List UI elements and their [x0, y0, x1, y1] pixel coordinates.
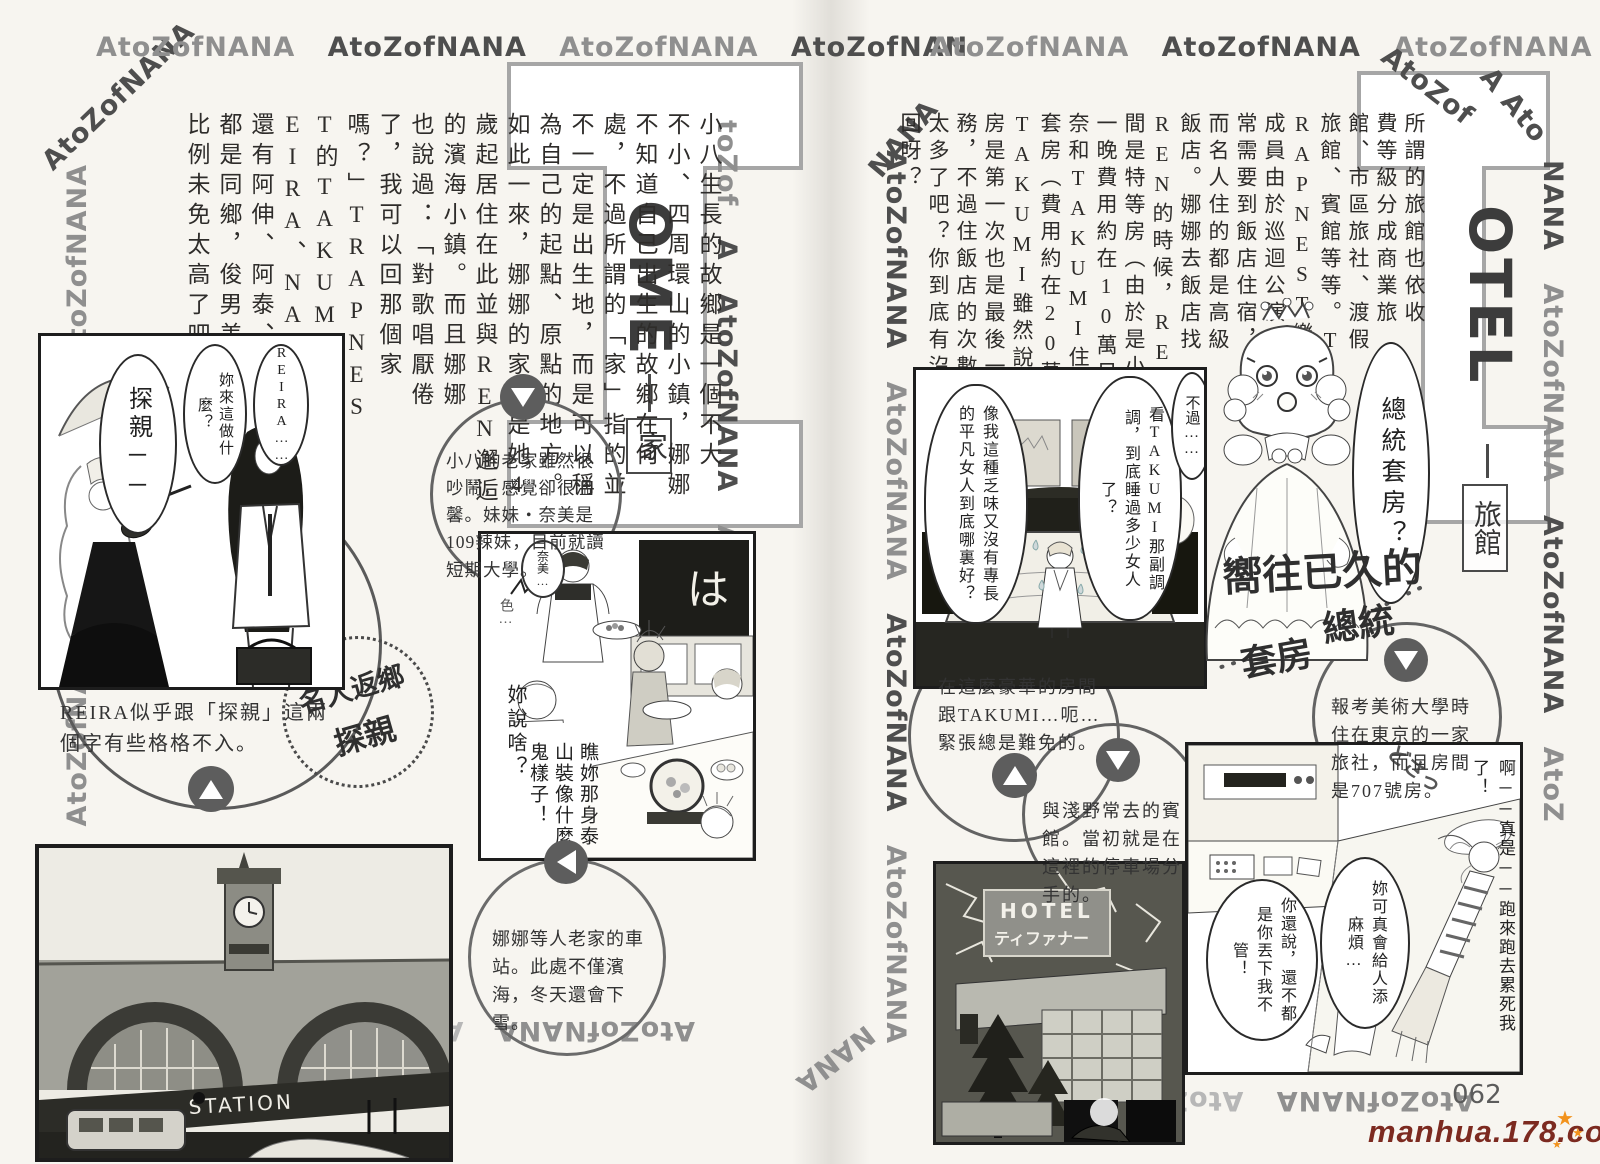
puff-sleeve-right — [1312, 435, 1350, 465]
tv-kana: は — [687, 556, 729, 617]
pointer-left-icon — [544, 840, 588, 884]
speech-bubble-blame: 你還說，還不都是你丟下我不管！ — [1206, 879, 1318, 1041]
info-asano-text: 與淺野常去的賓館。當初就是在這裡的停車場分手的。 — [1042, 798, 1198, 910]
text-column: 不知道自己出生的故鄉在何 — [628, 112, 660, 550]
frame-text-item: AtoZofNANA — [1276, 1085, 1475, 1116]
panel-station-photo: STATION — [35, 844, 453, 1162]
title-dash-right — [1486, 444, 1489, 478]
hotel-sign-line2: ティファナー — [994, 929, 1089, 948]
frame-text-item: AtoZofNANA — [1537, 283, 1568, 482]
frame-text-item: AtoZofNANA — [1537, 515, 1568, 714]
panel-reira-takumi: REIRA…… 妳來這做什麼？ 探親── — [38, 333, 345, 690]
frame-text-item: AtoZofNANA — [1162, 32, 1361, 63]
speech-bubble-what-doing: 妳來這做什麼？ — [183, 344, 247, 484]
frame-text-item: AtoZofNANA — [930, 32, 1129, 63]
frame-text-item: AtoZofNANA — [328, 32, 527, 63]
frame-text-item: AtoZofNANA — [880, 613, 911, 812]
frame-text-item: AtoZofNANA — [96, 32, 295, 63]
frame-text-item: AtoZofNANA — [559, 32, 758, 63]
pointer-down-icon — [1096, 738, 1140, 782]
handwritten-presidential: 總統 — [1319, 591, 1398, 653]
info-station-text: 娜娜等人老家的車站。此處不僅濱海，冬天還會下雪。 — [492, 926, 652, 1038]
stove — [647, 812, 707, 824]
text-column: 小八生長的故鄉是一個不大 — [692, 112, 724, 550]
crown — [1263, 304, 1309, 320]
pointer-up-icon — [188, 766, 234, 812]
frame-text-right-edge-right-page: NANA AtoZofNANA AtoZofNANA AtoZ — [1530, 160, 1574, 845]
puff-sleeve-left — [1224, 435, 1262, 465]
thought-bubble-plain-woman: 像我這種乏味又沒有專長的平凡女人到底哪裏好？ — [924, 384, 1028, 624]
princess-open-mouth — [1278, 393, 1296, 411]
text-column: 了，我可以回那個家 — [372, 112, 404, 550]
sfx-color: 色… — [495, 598, 515, 627]
frame-text-top-left-page: AtoZofNANA AtoZofNANA AtoZofNANA AtoZofN… — [96, 26, 990, 70]
panel-presidential-suite: 看TAKUMI那副調調，到底睡過多少女人了？ 不過…… 像我這種乏味又沒有專長的… — [913, 367, 1207, 689]
speech-bubble-reira: REIRA…… — [253, 344, 309, 466]
text-column: 不小、四周環山的小鎮，娜娜 — [660, 112, 692, 550]
title-otel: OTEL — [1456, 205, 1524, 386]
pointer-down-icon — [500, 374, 546, 420]
cousin-head — [701, 806, 733, 838]
manga-spread: { "border_text": "AtoZofNANA", "fragment… — [0, 0, 1600, 1164]
title-category-hotel: 旅館 — [1462, 484, 1508, 572]
thought-bubble-takumi: 看TAKUMI那副調調，到底睡過多少女人了？ — [1078, 376, 1182, 621]
console-slot — [1224, 773, 1286, 787]
headlight-flare — [1090, 1098, 1118, 1126]
page-number: 062 — [1452, 1080, 1502, 1110]
telephone — [1210, 855, 1254, 879]
garage-right — [1126, 1100, 1176, 1142]
frame-text-item: AtoZofNANA — [880, 845, 911, 1044]
frame-text-item: NANA — [1537, 160, 1568, 251]
hot-pot — [651, 760, 703, 812]
info-luxury-text: 在這麼豪華的房間跟TAKUMI…呃…緊張總是難免的。 — [938, 674, 1104, 758]
sister-head — [634, 641, 664, 671]
frame-text-item: AtoZ — [1537, 747, 1568, 823]
pointer-up-icon — [992, 753, 1037, 798]
suitcase — [237, 648, 311, 684]
caption-reira-text: REIRA似乎跟「探親」這兩個字有些格格不入。 — [60, 698, 338, 760]
info-707-text: 報考美術大學時住在東京的一家旅社，而且房間是707號房。 — [1331, 694, 1485, 806]
speech-bubble-visit: 探親── — [99, 354, 177, 534]
pointer-down-icon — [1384, 638, 1428, 682]
station-photo-art: STATION — [39, 848, 449, 1158]
info-family-home-text: 小八的老家雖然很吵鬧，感覺卻很溫馨。妹妹・奈美是109辣妹，目前就讀短期大學。 — [446, 448, 608, 584]
star-icon: ★ — [1572, 1126, 1584, 1141]
fence — [942, 1102, 1052, 1136]
bathrobe — [1038, 568, 1082, 628]
handwritten-longing: 嚮往已久的 — [1221, 535, 1424, 603]
plate — [593, 621, 641, 639]
thought-bubble-however: 不過…… — [1171, 372, 1207, 480]
speech-bubble-trouble: 妳可真會給人添麻煩… — [1320, 857, 1410, 1029]
reira-dress — [71, 542, 157, 636]
stamp-line2: 探親 — [328, 703, 400, 763]
star-icon: ★ — [1552, 1138, 1562, 1151]
